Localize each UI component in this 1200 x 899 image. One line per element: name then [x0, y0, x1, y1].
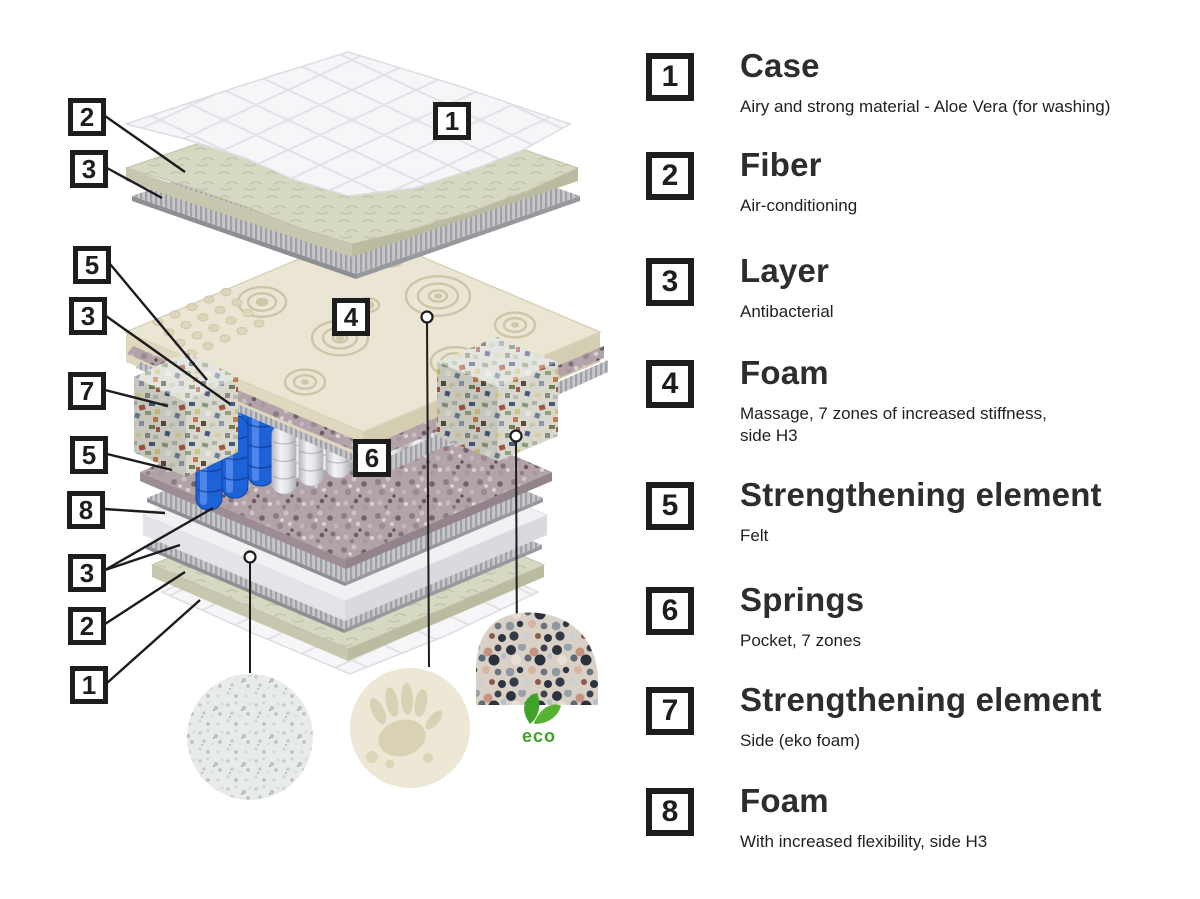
- legend-desc: Massage, 7 zones of increased stiffness,…: [740, 403, 1180, 447]
- legend-title: Foam: [740, 784, 1180, 819]
- callout-eco-foam: 7: [68, 372, 106, 410]
- legend-title: Strengthening element: [740, 683, 1180, 718]
- legend-title: Fiber: [740, 148, 1180, 183]
- swatch-granite-foam: [476, 613, 598, 705]
- legend-title: Springs: [740, 583, 1180, 618]
- legend-title: Case: [740, 49, 1180, 84]
- swatch-foam-texture: [187, 674, 313, 800]
- callout-label: 4: [344, 304, 358, 330]
- legend-num-box: 5: [646, 482, 694, 530]
- legend-num-box: 6: [646, 587, 694, 635]
- callout-label: 1: [445, 108, 459, 134]
- pin-eco-foam: [511, 431, 522, 442]
- callout-foam-massage: 4: [332, 298, 370, 336]
- callout-label: 1: [82, 672, 96, 698]
- pin-foam-flex: [245, 552, 256, 563]
- callout-label: 5: [85, 252, 99, 278]
- legend-desc: Antibacterial: [740, 301, 1180, 323]
- callout-label: 3: [81, 303, 95, 329]
- legend-desc: Side (eko foam): [740, 730, 1180, 752]
- callout-mesh-top: 3: [70, 150, 108, 188]
- callout-mesh-bottom: 3: [68, 554, 106, 592]
- callout-label: 2: [80, 104, 94, 130]
- callout-felt-upper: 5: [73, 246, 111, 284]
- legend-num-box: 4: [646, 360, 694, 408]
- callout-label: 8: [79, 497, 93, 523]
- legend-num-box: 1: [646, 53, 694, 101]
- callout-label: 6: [365, 445, 379, 471]
- callout-felt-lower: 5: [70, 436, 108, 474]
- callout-label: 2: [80, 613, 94, 639]
- legend-num: 1: [662, 62, 679, 92]
- legend-desc: Airy and strong material - Aloe Vera (fo…: [740, 96, 1180, 118]
- legend-num: 6: [662, 596, 679, 626]
- eco-badge-label: eco: [522, 726, 556, 746]
- legend-num-box: 8: [646, 788, 694, 836]
- callout-mesh-mid: 3: [69, 297, 107, 335]
- legend-title: Layer: [740, 254, 1180, 289]
- swatch-memory-foam-handprint: [350, 668, 470, 788]
- eco-foam-block-left: [134, 352, 238, 477]
- callout-foam-flex: 8: [67, 491, 105, 529]
- callout-fiber-bottom: 2: [68, 607, 106, 645]
- eco-foam-block-right: [437, 337, 558, 461]
- legend-title: Strengthening element: [740, 478, 1180, 513]
- callout-case-top: 1: [433, 102, 471, 140]
- callout-label: 3: [80, 560, 94, 586]
- legend-num: 4: [662, 369, 679, 399]
- legend-desc: Air-conditioning: [740, 195, 1180, 217]
- legend-num-box: 7: [646, 687, 694, 735]
- legend-num: 5: [662, 491, 679, 521]
- callout-case-bottom: 1: [70, 666, 108, 704]
- callout-label: 3: [82, 156, 96, 182]
- legend-num: 7: [662, 696, 679, 726]
- legend-title: Foam: [740, 356, 1180, 391]
- legend-desc: Felt: [740, 525, 1180, 547]
- legend-num: 2: [662, 161, 679, 191]
- legend-num: 8: [662, 797, 679, 827]
- mattress-layers-infographic: eco 2 3 5 3 7 5 8 3 2 1 1 4 6 1 Case: [0, 0, 1200, 899]
- legend-desc: With increased flexibility, side H3: [740, 831, 1180, 853]
- legend-num: 3: [662, 267, 679, 297]
- legend-num-box: 3: [646, 258, 694, 306]
- callout-springs: 6: [353, 439, 391, 477]
- callout-label: 5: [82, 442, 96, 468]
- legend-desc: Pocket, 7 zones: [740, 630, 1180, 652]
- legend-num-box: 2: [646, 152, 694, 200]
- callout-fiber-top: 2: [68, 98, 106, 136]
- callout-label: 7: [80, 378, 94, 404]
- pin-foam-massage: [422, 312, 433, 323]
- legend: 1 Case Airy and strong material - Aloe V…: [646, 0, 1186, 899]
